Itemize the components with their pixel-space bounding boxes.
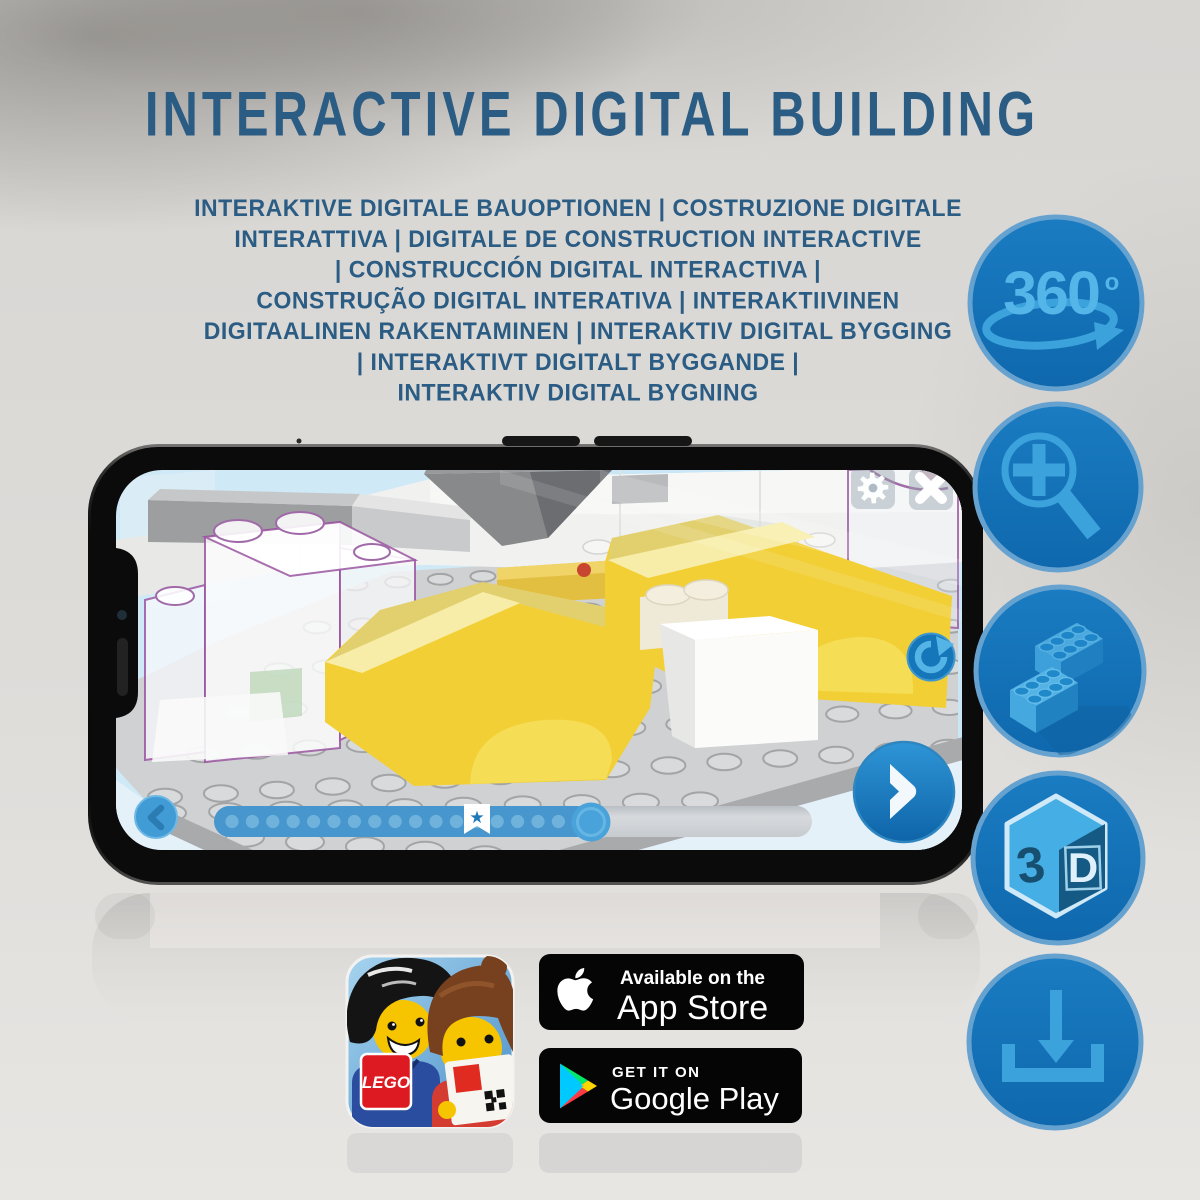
svg-text:o: o <box>1105 269 1120 296</box>
svg-text:Available on the: Available on the <box>620 968 765 989</box>
svg-text:App Store: App Store <box>617 989 768 1027</box>
svg-text:GET IT ON: GET IT ON <box>612 1064 701 1081</box>
svg-text:★: ★ <box>469 808 484 827</box>
svg-text:D: D <box>1068 844 1098 891</box>
svg-text:LEGO: LEGO <box>362 1073 410 1092</box>
svg-text:Google Play: Google Play <box>610 1081 779 1116</box>
svg-text:360: 360 <box>1003 259 1099 327</box>
